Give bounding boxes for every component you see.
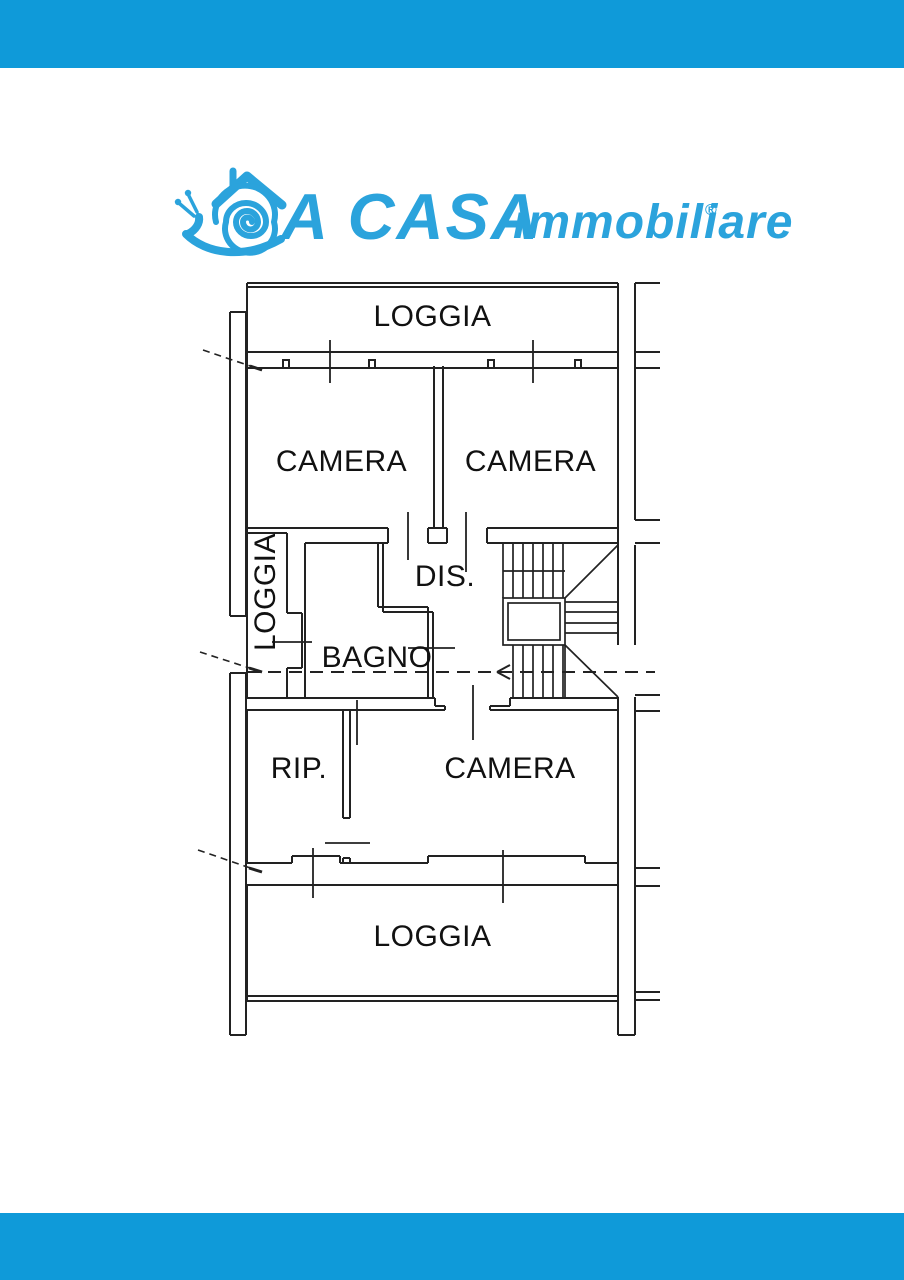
- agency-logo: A CASA immobiliare ®: [0, 68, 904, 208]
- bottom-window-wall: [247, 856, 618, 885]
- room-label-camera-left: CAMERA: [249, 445, 434, 479]
- top-color-bar: [0, 0, 904, 68]
- snail-house-icon: [170, 158, 290, 258]
- staircase: [503, 543, 618, 698]
- right-wall-and-stubs: [618, 283, 660, 1035]
- left-pillar: [230, 312, 246, 1035]
- room-label-camera-right: CAMERA: [443, 445, 618, 479]
- room-label-camera-bottom: CAMERA: [400, 752, 620, 786]
- brand-name: A CASA: [281, 184, 540, 250]
- lower-door-band: [247, 698, 618, 710]
- opening-ticks: [272, 340, 533, 903]
- registered-mark: ®: [705, 202, 717, 220]
- upper-door-band: [247, 528, 618, 543]
- room-label-loggia-bottom: LOGGIA: [247, 920, 618, 954]
- brand-subtitle: immobiliare: [513, 198, 793, 248]
- rip-wall: [343, 710, 350, 863]
- snail-neck: [188, 217, 199, 234]
- room-label-dis: DIS.: [385, 560, 505, 594]
- room-label-rip: RIP.: [249, 752, 349, 786]
- snail-antennae: [180, 196, 197, 216]
- bottom-loggia-walls: [247, 996, 618, 1001]
- camera-divider-wall: [434, 366, 443, 528]
- room-label-loggia-side: LOGGIA: [249, 506, 283, 678]
- bottom-color-bar: [0, 1213, 904, 1280]
- top-window-wall: [247, 360, 618, 368]
- room-label-bagno: BAGNO: [307, 641, 447, 675]
- room-label-loggia-top: LOGGIA: [247, 300, 618, 334]
